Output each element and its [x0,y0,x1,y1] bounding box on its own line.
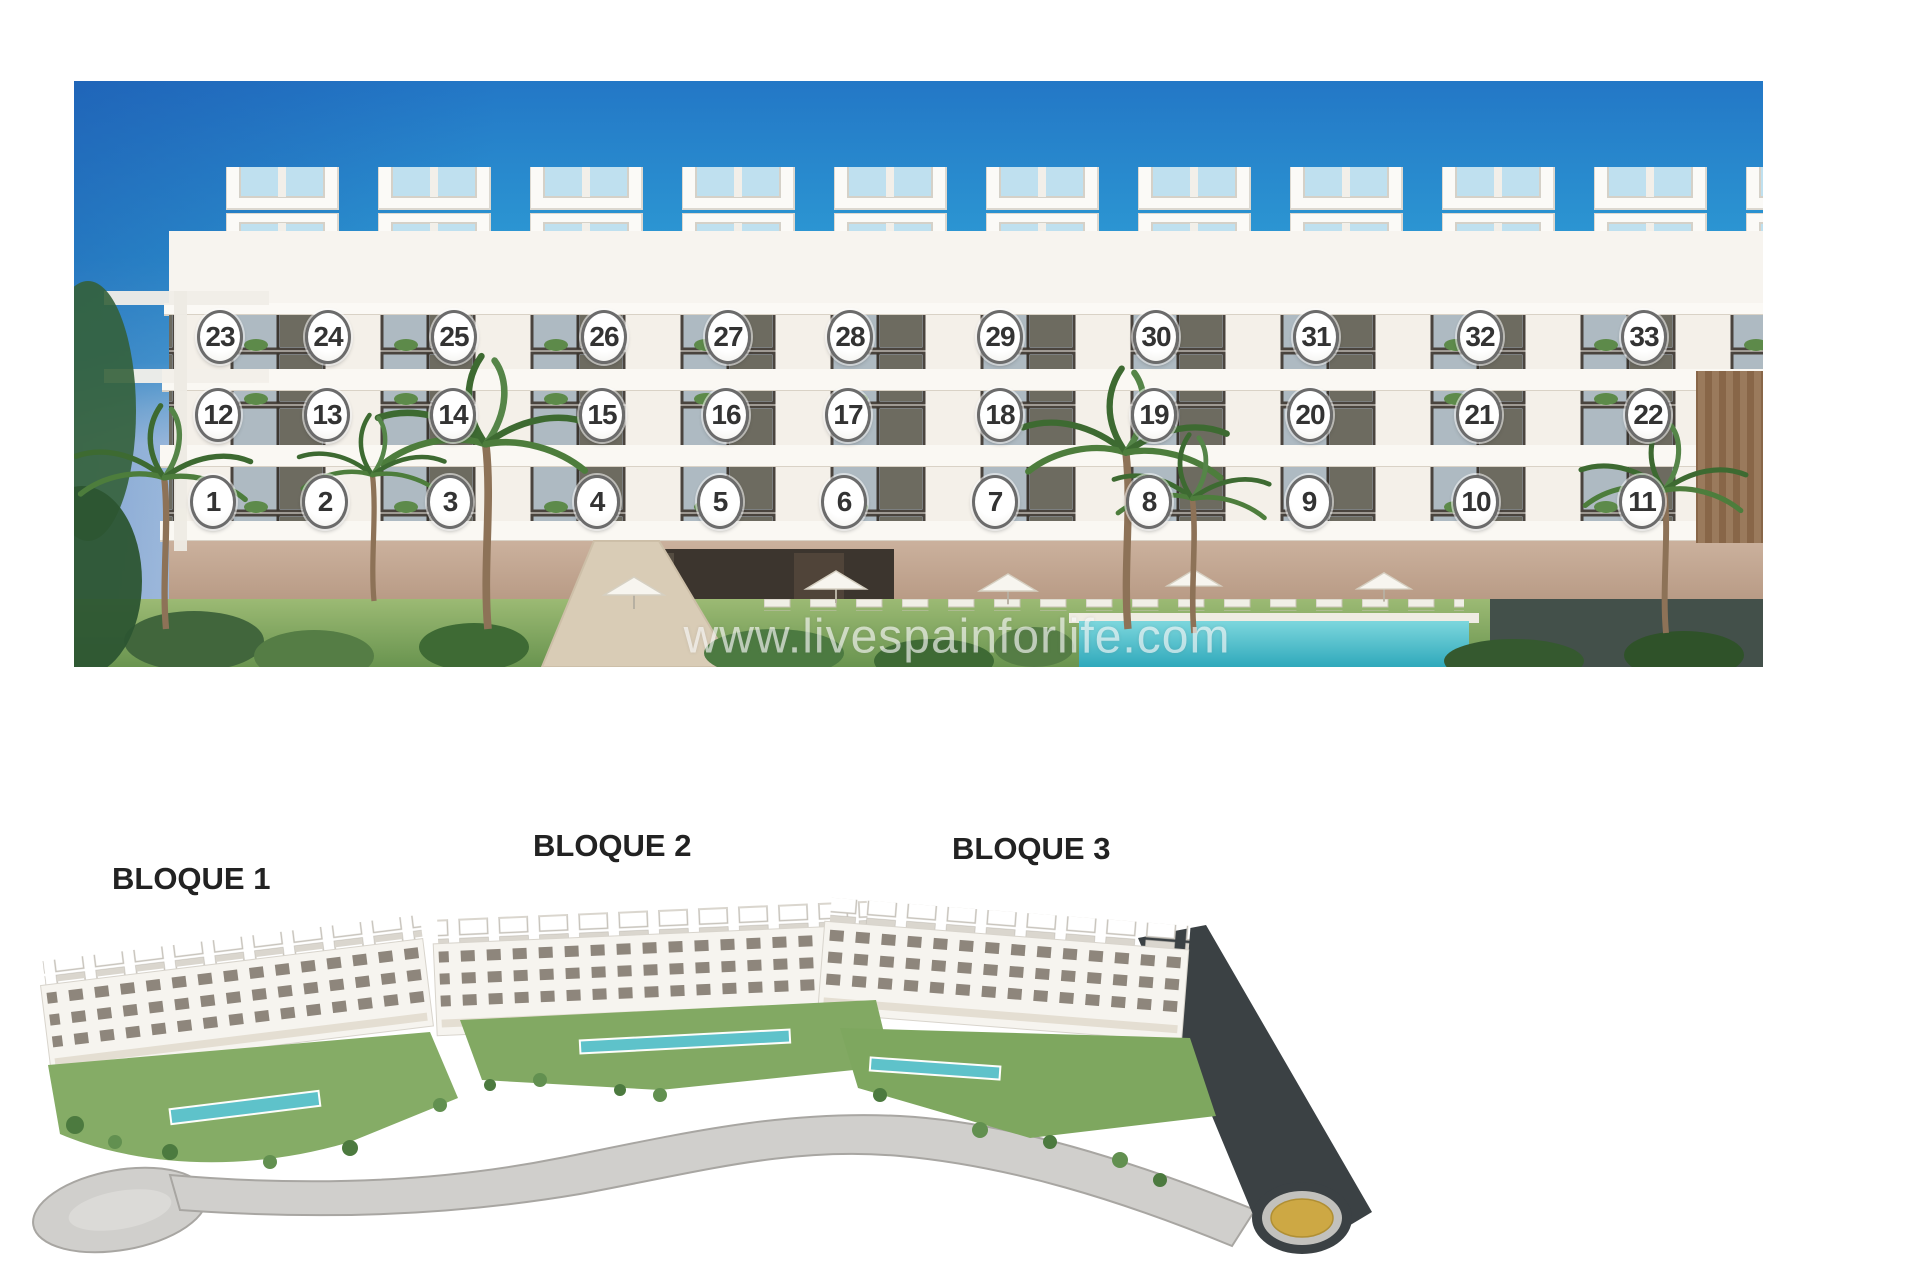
unit-marker-20: 20 [1287,388,1333,442]
unit-marker-30: 30 [1133,310,1179,364]
unit-marker-19: 19 [1131,388,1177,442]
unit-marker-31: 31 [1293,310,1339,364]
unit-marker-26: 26 [581,310,627,364]
unit-marker-2: 2 [302,475,348,529]
unit-marker-15: 15 [579,388,625,442]
unit-marker-23: 23 [197,310,243,364]
unit-marker-12: 12 [195,388,241,442]
unit-marker-4: 4 [574,475,620,529]
building-elevation-photo: www.livespainforlife.com 123456789101112… [74,81,1763,667]
unit-marker-27: 27 [705,310,751,364]
property-availability-image: { "photo": { "watermark": "www.livespain… [0,0,1920,1280]
unit-marker-24: 24 [305,310,351,364]
bloque-2-label: BLOQUE 2 [533,828,691,864]
bloque-3-label: BLOQUE 3 [952,831,1110,867]
unit-marker-32: 32 [1457,310,1503,364]
unit-marker-8: 8 [1126,475,1172,529]
unit-marker-22: 22 [1625,388,1671,442]
unit-marker-1: 1 [190,475,236,529]
unit-marker-11: 11 [1619,475,1665,529]
unit-marker-21: 21 [1456,388,1502,442]
unit-marker-29: 29 [977,310,1023,364]
unit-marker-16: 16 [703,388,749,442]
unit-marker-9: 9 [1286,475,1332,529]
unit-marker-25: 25 [431,310,477,364]
unit-marker-17: 17 [825,388,871,442]
unit-marker-13: 13 [304,388,350,442]
unit-marker-5: 5 [697,475,743,529]
unit-marker-layer: 1234567891011121314151617181920212223242… [74,81,1763,667]
unit-marker-18: 18 [977,388,1023,442]
unit-marker-10: 10 [1453,475,1499,529]
site-plan-art [20,880,1480,1260]
bloque-1-label: BLOQUE 1 [112,861,270,897]
unit-marker-14: 14 [430,388,476,442]
roundabout [1252,1182,1352,1254]
unit-marker-28: 28 [827,310,873,364]
unit-marker-33: 33 [1621,310,1667,364]
site-plan [20,880,1480,1260]
unit-marker-6: 6 [821,475,867,529]
unit-marker-3: 3 [427,475,473,529]
unit-marker-7: 7 [972,475,1018,529]
